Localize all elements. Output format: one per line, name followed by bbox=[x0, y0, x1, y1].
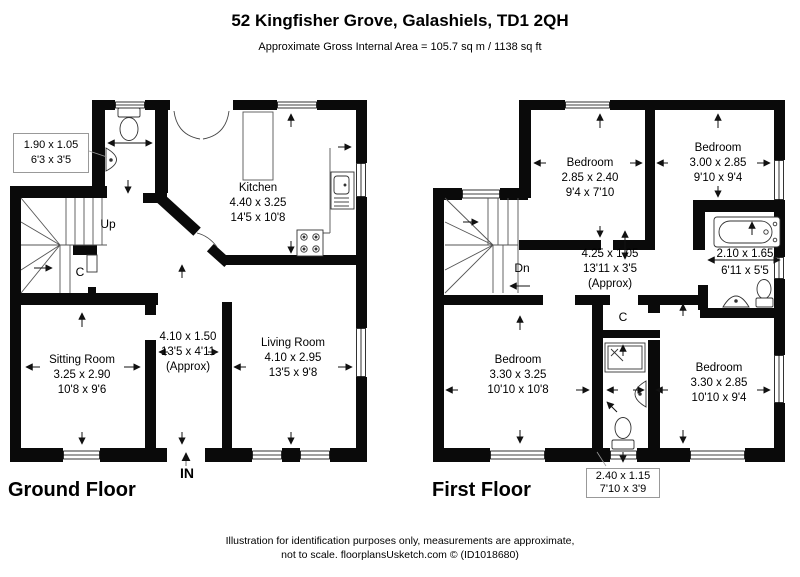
hall-label: 4.10 x 1.50 13'5 x 4'11 (Approx) bbox=[160, 330, 217, 375]
page-title: 52 Kingfisher Grove, Galashiels, TD1 2QH bbox=[231, 11, 568, 31]
bedroom-top-left-label: Bedroom 2.85 x 2.40 9'4 x 7'10 bbox=[562, 156, 619, 201]
living-room-label: Living Room 4.10 x 2.95 13'5 x 9'8 bbox=[261, 336, 325, 381]
bathroom-sink-icon bbox=[723, 296, 749, 307]
wc-sink-icon bbox=[106, 148, 117, 171]
first-floor-title: First Floor bbox=[432, 479, 531, 502]
disclaimer-line-2: not to scale. floorplansUsketch.com © (I… bbox=[281, 548, 519, 562]
closet-door bbox=[87, 255, 97, 272]
entrance-label: IN bbox=[180, 465, 194, 481]
landing-label: 4.25 x 1.05 13'11 x 3'5 (Approx) bbox=[582, 247, 639, 292]
kitchen-sink-icon bbox=[331, 172, 354, 209]
bedroom-bottom-right-label: Bedroom 3.30 x 2.85 10'10 x 9'4 bbox=[691, 361, 748, 406]
bathroom-label: 2.10 x 1.65 6'11 x 5'5 bbox=[717, 247, 774, 278]
ground-floor-title: Ground Floor bbox=[8, 479, 136, 502]
bath-icon bbox=[714, 217, 780, 247]
first-closet-label: C bbox=[619, 310, 628, 324]
shower-room-toilet-icon bbox=[612, 418, 634, 450]
stairs-up-label: Up bbox=[100, 217, 115, 231]
shower-icon bbox=[605, 343, 645, 372]
page-subtitle: Approximate Gross Internal Area = 105.7 … bbox=[258, 41, 541, 53]
wc-dimension-box: 1.90 x 1.05 6'3 x 3'5 bbox=[13, 133, 89, 173]
stairs-down-label: Dn bbox=[514, 261, 529, 275]
ground-floor-diagonal-walls bbox=[159, 197, 224, 260]
sitting-room-label: Sitting Room 3.25 x 2.90 10'8 x 9'6 bbox=[49, 353, 115, 398]
wc-toilet-icon bbox=[118, 108, 140, 141]
kitchen-label: Kitchen 4.40 x 3.25 14'5 x 10'8 bbox=[230, 181, 287, 226]
bathroom-toilet-icon bbox=[756, 280, 773, 308]
entrance-door-arcs bbox=[174, 111, 229, 247]
ground-closet-label: C bbox=[76, 265, 85, 279]
disclaimer-line-1: Illustration for identification purposes… bbox=[226, 534, 575, 548]
floorplan-page: 52 Kingfisher Grove, Galashiels, TD1 2QH… bbox=[0, 0, 800, 577]
hob-icon bbox=[297, 230, 323, 256]
shower-room-dimension-box: 2.40 x 1.15 7'10 x 3'9 bbox=[586, 468, 660, 498]
bedroom-top-right-label: Bedroom 3.00 x 2.85 9'10 x 9'4 bbox=[690, 141, 747, 186]
staircase-down bbox=[445, 198, 518, 293]
shower-room-sink-icon bbox=[635, 381, 646, 407]
bedroom-bottom-left-label: Bedroom 3.30 x 3.25 10'10 x 10'8 bbox=[487, 353, 548, 398]
